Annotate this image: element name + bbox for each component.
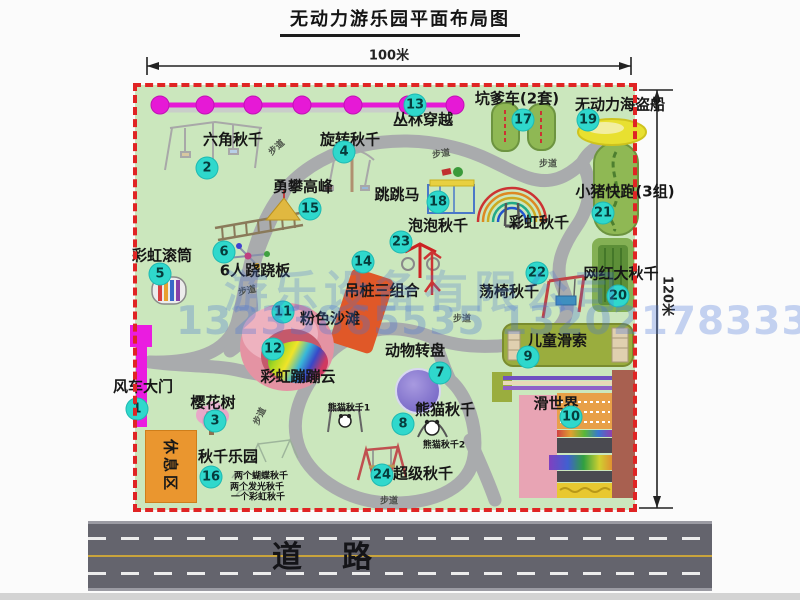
poi-badge-7: 7 [429, 362, 452, 385]
poi-label-18: 跳跳马 [374, 188, 419, 203]
poi-badge-17: 17 [512, 109, 535, 132]
walk-path-label: 步道 [249, 405, 269, 427]
poi-badge-19: 19 [577, 109, 600, 132]
poi-label-1: 风车大门 [113, 380, 173, 395]
poi-badge-18: 18 [427, 191, 450, 214]
walk-path-label: 步道 [380, 494, 398, 507]
poi-label-17: 坑爹车(2套) [475, 92, 559, 107]
poi-label-20: 网红大秋千 [583, 267, 658, 282]
extra-label: 一个彩虹秋千 [231, 494, 285, 503]
poi-badge-21: 21 [592, 202, 615, 225]
poi-label-21: 小猪快跑(3组) [575, 185, 674, 200]
poi-label-14: 吊桩三组合 [344, 284, 419, 299]
poi-badge-24: 24 [371, 464, 394, 487]
poi-label-22: 荡椅秋千 [479, 285, 539, 300]
poi-label-23: 泡泡秋千 [408, 219, 468, 234]
poi-label-2: 六角秋千 [203, 133, 263, 148]
poi-badge-22: 22 [526, 262, 549, 285]
poi-label-11: 粉色沙滩 [300, 312, 360, 327]
extra-label: 熊猫秋千1 [328, 405, 370, 414]
walk-path-label: 步道 [431, 145, 451, 160]
poi-label-5: 彩虹滚筒 [132, 249, 192, 264]
poi-label-7: 动物转盘 [385, 344, 445, 359]
walk-path-label: 步道 [265, 136, 287, 158]
walk-path-label: 步道 [453, 312, 471, 325]
poi-badge-10: 10 [560, 406, 583, 429]
poi-badge-15: 15 [299, 198, 322, 221]
extra-label: 两个发光秋千 [230, 484, 284, 493]
poi-badge-8: 8 [392, 413, 415, 436]
poi-label-9: 儿童滑索 [527, 334, 587, 349]
poi-badge-12: 12 [262, 338, 285, 361]
poi-badge-20: 20 [607, 285, 630, 308]
poi-badge-11: 11 [272, 301, 295, 324]
poi-badge-23: 23 [390, 231, 413, 254]
poi-label-13: 丛林穿越 [393, 113, 453, 128]
poi-badge-14: 14 [352, 251, 375, 274]
poi-badge-13: 13 [404, 94, 427, 117]
poi-label-15: 勇攀高峰 [273, 180, 333, 195]
labels-layer: 风车大门1六角秋千2樱花树3旋转秋千4彩虹滚筒56人跷跷板6动物转盘7熊猫秋千8… [0, 0, 800, 600]
poi-badge-16: 16 [200, 466, 223, 489]
poi-label-16: 秋千乐园 [198, 450, 258, 465]
poi-badge-3: 3 [204, 410, 227, 433]
poi-label-12: 彩虹蹦蹦云 [260, 370, 335, 385]
poi-badge-6: 6 [213, 241, 236, 264]
poi-badge-9: 9 [517, 346, 540, 369]
extra-label: 彩虹秋千 [509, 216, 569, 231]
poi-label-24: 超级秋千 [393, 467, 453, 482]
park-layout-map: 无动力游乐园平面布局图 100米 120米 [0, 0, 800, 600]
extra-label: 两个蝴蝶秋千 [234, 473, 288, 482]
extra-label: 熊猫秋千2 [423, 442, 465, 451]
poi-badge-5: 5 [149, 263, 172, 286]
poi-label-8: 熊猫秋千 [415, 403, 475, 418]
poi-badge-4: 4 [333, 141, 356, 164]
poi-badge-2: 2 [196, 157, 219, 180]
poi-label-3: 樱花树 [190, 396, 235, 411]
walk-path-label: 步道 [539, 157, 557, 170]
poi-label-6: 6人跷跷板 [220, 264, 290, 279]
walk-path-label: 步道 [237, 282, 257, 298]
poi-badge-1: 1 [126, 398, 149, 421]
